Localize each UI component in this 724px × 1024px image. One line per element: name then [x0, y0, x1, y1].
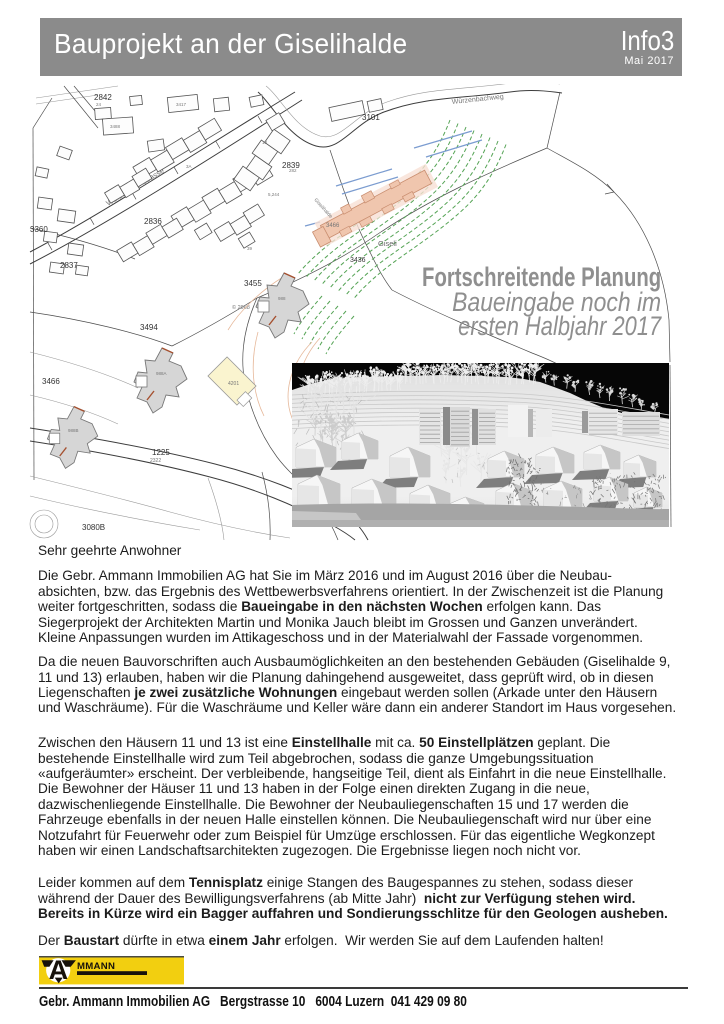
svg-text:2836: 2836 — [144, 217, 162, 226]
svg-text:2839: 2839 — [282, 161, 300, 170]
svg-text:2322: 2322 — [150, 458, 161, 464]
svg-text:18: 18 — [262, 140, 268, 145]
svg-text:3360: 3360 — [30, 225, 48, 234]
svg-text:3A: 3A — [186, 164, 192, 169]
svg-text:5,244: 5,244 — [268, 192, 280, 197]
svg-text:MMANN: MMANN — [77, 961, 115, 972]
svg-text:© 2968: © 2968 — [232, 304, 250, 311]
svg-text:3466: 3466 — [326, 223, 340, 229]
svg-text:2842: 2842 — [94, 93, 112, 102]
svg-text:3436: 3436 — [350, 257, 366, 264]
svg-text:24: 24 — [96, 102, 102, 107]
svg-text:3080B: 3080B — [82, 523, 105, 532]
svg-text:Giselihalde: Giselihalde — [313, 197, 334, 220]
svg-text:3417: 3417 — [176, 102, 187, 107]
svg-text:2837: 2837 — [60, 261, 78, 270]
svg-text:3466: 3466 — [42, 377, 60, 386]
svg-text:3488: 3488 — [110, 124, 121, 129]
svg-text:3494: 3494 — [140, 323, 158, 332]
svg-text:1225: 1225 — [152, 448, 170, 457]
svg-text:Würzenbachweg: Würzenbachweg — [451, 94, 504, 106]
svg-text:4201: 4201 — [228, 381, 239, 387]
svg-text:3101: 3101 — [362, 113, 380, 122]
svg-text:Giseli: Giseli — [378, 239, 397, 248]
svg-text:A: A — [49, 956, 68, 985]
svg-text:39: 39 — [247, 246, 253, 251]
svg-text:988A: 988A — [156, 371, 167, 376]
svg-text:988B: 988B — [68, 428, 79, 433]
svg-text:988: 988 — [278, 296, 286, 301]
svg-text:3455: 3455 — [244, 279, 262, 288]
